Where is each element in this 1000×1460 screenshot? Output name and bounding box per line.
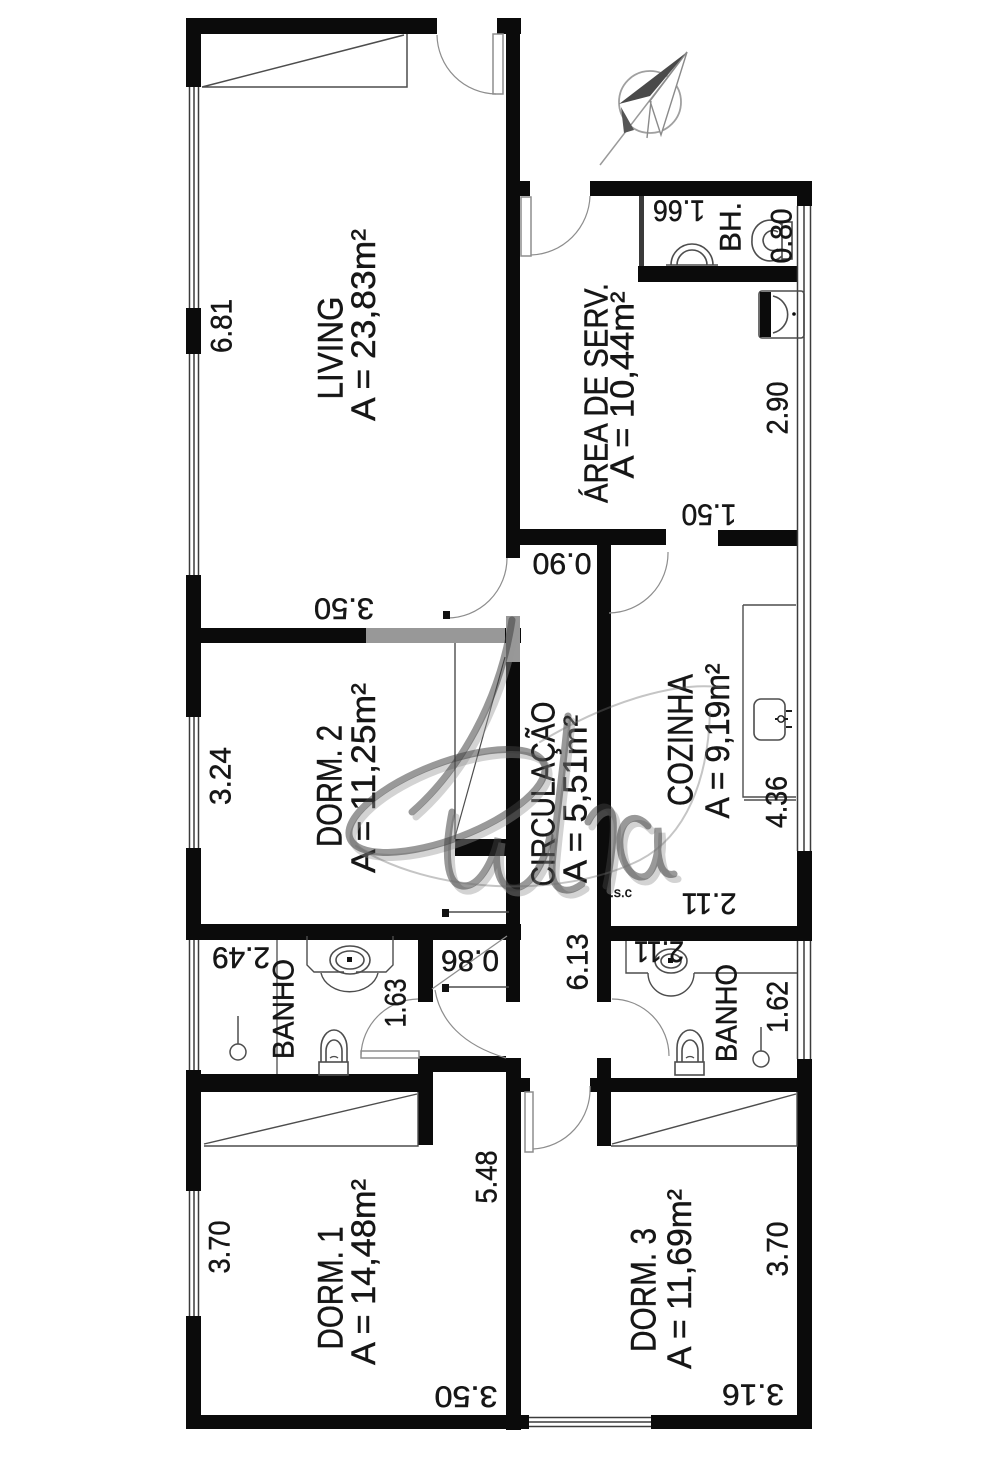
- svg-text:0.80: 0.80: [766, 209, 799, 264]
- svg-text:DORM. 3: DORM. 3: [625, 1228, 664, 1352]
- svg-text:2.11: 2.11: [634, 935, 684, 968]
- svg-text:1.50: 1.50: [682, 498, 737, 531]
- svg-text:4.36: 4.36: [761, 776, 794, 828]
- svg-text:5.48: 5.48: [471, 1151, 504, 1204]
- svg-text:2.49: 2.49: [212, 941, 270, 974]
- svg-text:A = 14,48m²: A = 14,48m²: [345, 1179, 383, 1365]
- svg-text:3.16: 3.16: [722, 1378, 784, 1411]
- svg-text:0.86: 0.86: [441, 944, 499, 977]
- svg-text:3.70: 3.70: [762, 1222, 795, 1277]
- svg-text:3.50: 3.50: [435, 1380, 498, 1413]
- svg-text:6.81: 6.81: [206, 299, 239, 353]
- svg-text:DORM. 2: DORM. 2: [311, 725, 350, 847]
- svg-text:.s.c: .s.c: [610, 884, 632, 900]
- svg-text:1.63: 1.63: [380, 979, 413, 1028]
- svg-text:3.70: 3.70: [204, 1221, 237, 1274]
- svg-text:6.13: 6.13: [562, 934, 595, 991]
- svg-text:1.62: 1.62: [762, 981, 795, 1033]
- svg-text:1.66: 1.66: [653, 194, 705, 227]
- svg-text:3.24: 3.24: [205, 747, 238, 805]
- svg-text:A = 23,83m²: A = 23,83m²: [345, 229, 383, 421]
- svg-text:BH.: BH.: [715, 202, 748, 252]
- svg-text:BANHO: BANHO: [268, 959, 301, 1059]
- svg-text:A = 10,44m²: A = 10,44m²: [604, 291, 641, 478]
- svg-text:0.90: 0.90: [533, 547, 592, 580]
- svg-text:COZINHA: COZINHA: [662, 673, 701, 806]
- svg-text:3.50: 3.50: [314, 592, 374, 625]
- svg-text:A = 11,69m²: A = 11,69m²: [661, 1189, 699, 1369]
- svg-text:2.11: 2.11: [682, 887, 737, 920]
- svg-text:2.90: 2.90: [762, 382, 795, 435]
- svg-text:BANHO: BANHO: [711, 964, 744, 1062]
